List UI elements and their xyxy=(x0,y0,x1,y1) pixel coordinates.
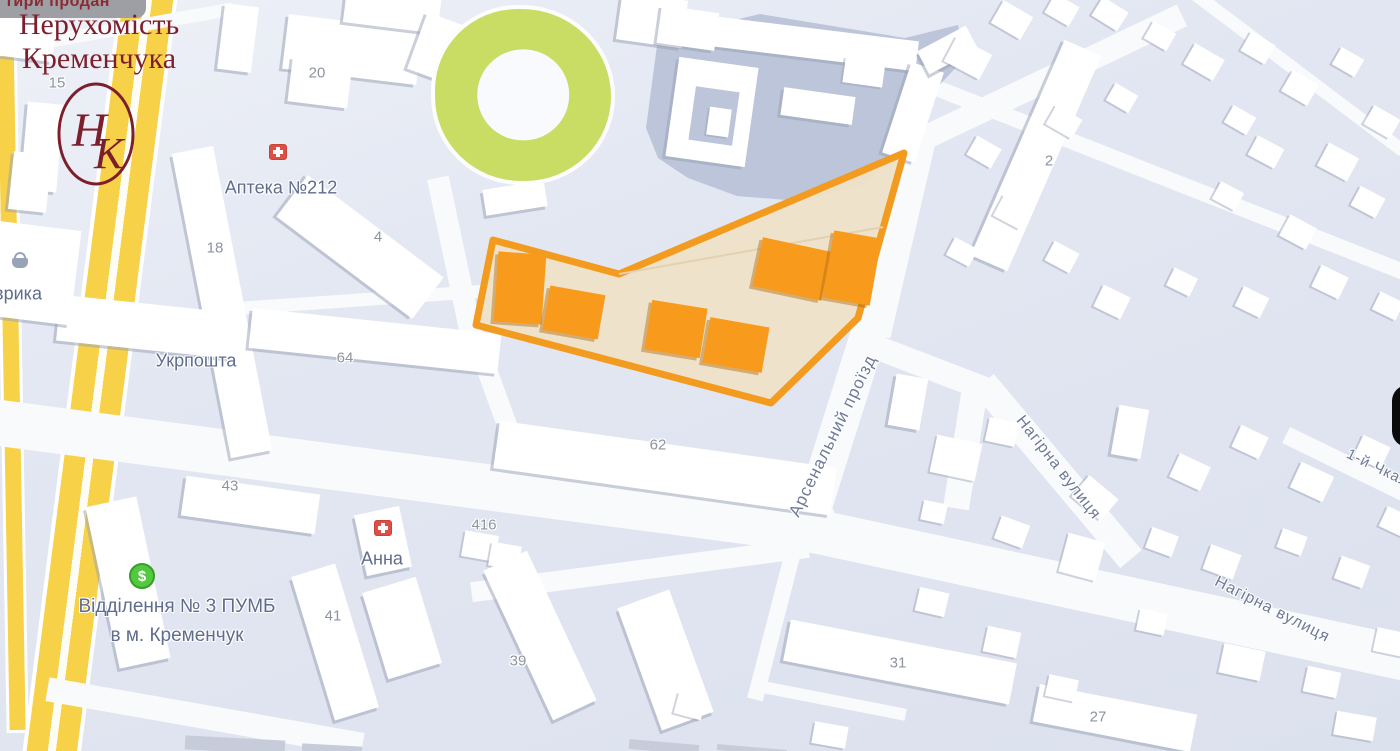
house-number-label: 39 xyxy=(510,653,527,670)
poi-label[interactable]: Укрпошта xyxy=(156,351,237,372)
edge-pill xyxy=(1392,385,1400,447)
street-label: 1-й Чкал xyxy=(1344,445,1400,490)
pharmacy-cross xyxy=(374,520,392,536)
street-label: Арсенальний проїзд xyxy=(785,352,881,520)
poi-label[interactable]: врика xyxy=(0,284,42,305)
house-number-label: 20 xyxy=(309,65,326,82)
dollar-circle: $ xyxy=(129,563,155,589)
poi-label[interactable]: Анна xyxy=(361,549,403,570)
poi-label[interactable]: Аптека №212 xyxy=(225,178,337,199)
house-number-label: 416 xyxy=(471,517,496,534)
basket-glyph xyxy=(12,258,28,268)
brand-monogram: Н К xyxy=(6,76,192,196)
house-number-label: 27 xyxy=(1090,709,1107,726)
brand-line1: Нерухомість xyxy=(6,8,192,42)
house-number-label: 4 xyxy=(374,229,382,246)
house-number-label: 41 xyxy=(325,608,342,625)
bank-icon[interactable]: $ xyxy=(129,563,155,589)
labels-layer: Арсенальний проїздНагірна вулицяНагірна … xyxy=(0,0,1400,751)
monogram-k: К xyxy=(93,129,126,178)
brand-logo: Нерухомість Кременчука Н К xyxy=(6,8,192,201)
brand-line2: Кременчука xyxy=(6,42,192,76)
pharmacy-icon[interactable] xyxy=(374,520,392,536)
map-screenshot: Арсенальний проїздНагірна вулицяНагірна … xyxy=(0,0,1400,751)
house-number-label: 43 xyxy=(222,478,239,495)
poi-label[interactable]: Відділення № 3 ПУМБ xyxy=(78,596,275,618)
basket-circle xyxy=(5,248,35,278)
pharmacy-cross xyxy=(269,144,287,160)
pharmacy-icon[interactable] xyxy=(269,144,287,160)
poi-label[interactable]: в м. Кременчук xyxy=(110,625,243,647)
house-number-label: 31 xyxy=(890,655,907,672)
basket-icon[interactable] xyxy=(5,248,35,278)
house-number-label: 62 xyxy=(650,437,667,454)
street-label: Нагірна вулиця xyxy=(1211,573,1332,647)
street-label: Нагірна вулиця xyxy=(1012,412,1104,523)
house-number-label: 18 xyxy=(207,240,224,257)
house-number-label: 64 xyxy=(337,350,354,367)
house-number-label: 2 xyxy=(1045,153,1053,170)
